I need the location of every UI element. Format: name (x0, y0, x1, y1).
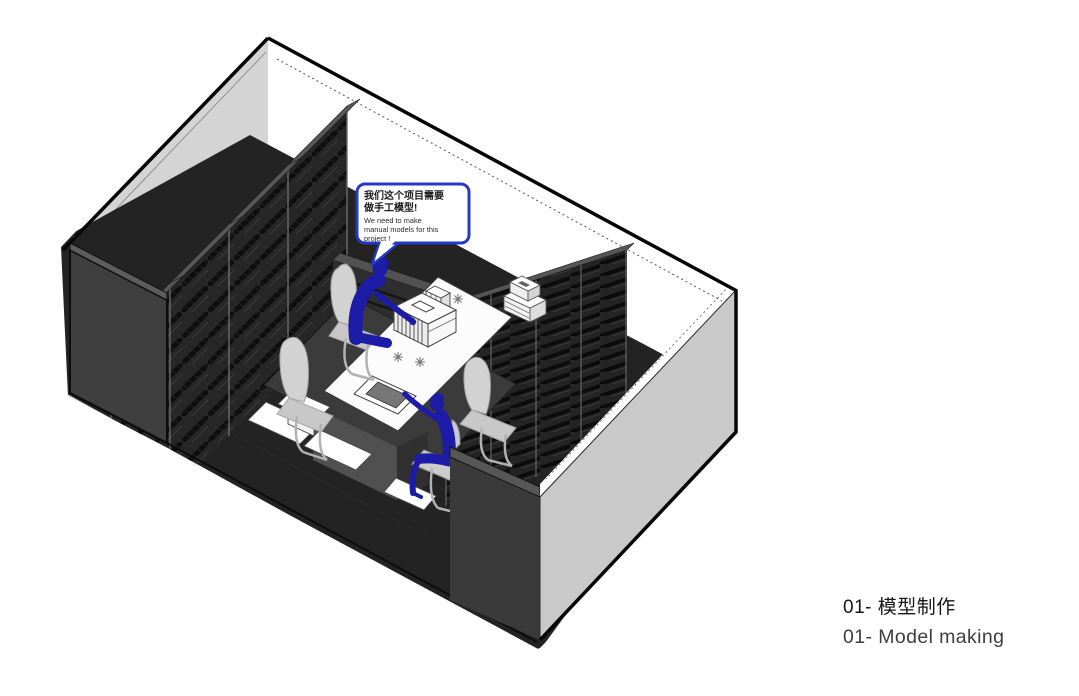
caption-line-en: 01- Model making (843, 626, 1004, 649)
bubble-en-line1: We need to make (364, 216, 422, 225)
caption-block: 01- 模型制作 01- Model making (843, 592, 1004, 649)
bubble-en-line2: manual models for this (364, 225, 439, 234)
caption-line-zh: 01- 模型制作 (843, 592, 1004, 619)
bubble-zh-line1: 我们这个项目需要 (364, 189, 444, 202)
bubble-zh-line2: 做手工模型! (363, 201, 417, 214)
bubble-en-line3: project ! (364, 234, 390, 243)
